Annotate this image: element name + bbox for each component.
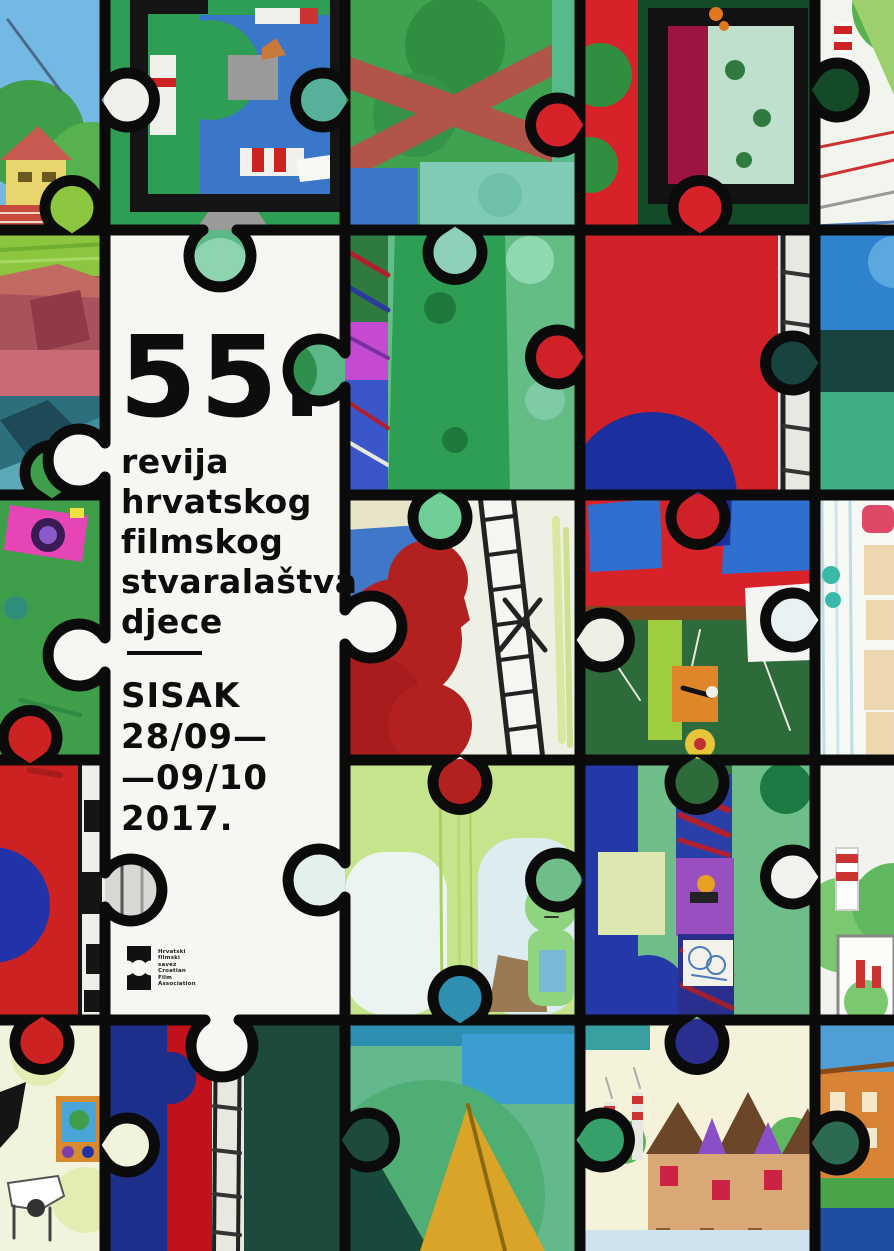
- white-piece-text-block: 55. revija hrvatskog filmskog stvaralašt…: [0, 0, 894, 1251]
- date-line: 28/09—: [121, 717, 268, 758]
- film-association-logo-icon: [127, 946, 151, 990]
- title-line: djece: [121, 602, 358, 642]
- city-label: SISAK: [121, 676, 268, 717]
- title-line: hrvatskog: [121, 482, 358, 522]
- edition-number: 55.: [119, 322, 326, 434]
- date-line: 2017.: [121, 799, 268, 840]
- title-line: filmskog: [121, 522, 358, 562]
- title-line: stvaralaštva: [121, 562, 358, 602]
- organizer-name: Hrvatski filmski savez Croatian Film Ass…: [158, 946, 196, 987]
- divider-rule: [127, 651, 202, 655]
- organizer-name-line: Association: [158, 981, 196, 987]
- event-details: SISAK 28/09— —09/10 2017.: [121, 676, 268, 840]
- poster: 55. revija hrvatskog filmskog stvaralašt…: [0, 0, 894, 1251]
- poster-title: revija hrvatskog filmskog stvaralaštva d…: [121, 442, 358, 642]
- date-line: —09/10: [121, 758, 268, 799]
- organizer-block: Hrvatski filmski savez Croatian Film Ass…: [127, 946, 196, 990]
- title-line: revija: [121, 442, 358, 482]
